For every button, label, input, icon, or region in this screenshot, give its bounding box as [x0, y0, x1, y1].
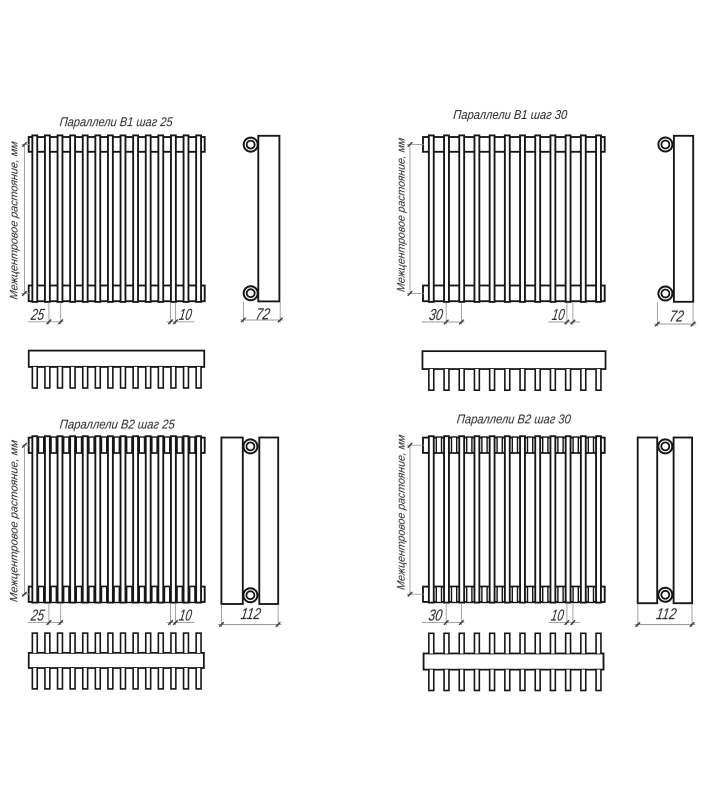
svg-text:Параллели В2 шаг 25: Параллели В2 шаг 25 — [59, 417, 176, 432]
svg-text:30: 30 — [428, 307, 444, 324]
svg-text:Параллели В1 шаг 25: Параллели В1 шаг 25 — [59, 114, 174, 129]
svg-text:Межцентровое растояние, мм: Межцентровое растояние, мм — [9, 140, 21, 300]
svg-text:25: 25 — [29, 307, 46, 324]
svg-text:72: 72 — [254, 307, 271, 324]
svg-text:Параллели В1 шаг 30: Параллели В1 шаг 30 — [453, 107, 569, 122]
svg-text:Межцентровое растояние, мм: Межцентровое растояние, мм — [9, 439, 21, 603]
svg-text:72: 72 — [668, 309, 685, 326]
svg-text:30: 30 — [427, 608, 443, 625]
svg-text:112: 112 — [239, 606, 262, 623]
svg-text:112: 112 — [655, 606, 678, 623]
svg-text:Параллели В2 шаг 30: Параллели В2 шаг 30 — [456, 411, 572, 426]
svg-text:25: 25 — [29, 608, 46, 625]
svg-text:Межцентровое растояние, мм: Межцентровое растояние, мм — [396, 137, 408, 293]
svg-text:Межцентровое растояние, мм: Межцентровое растояние, мм — [396, 434, 408, 591]
